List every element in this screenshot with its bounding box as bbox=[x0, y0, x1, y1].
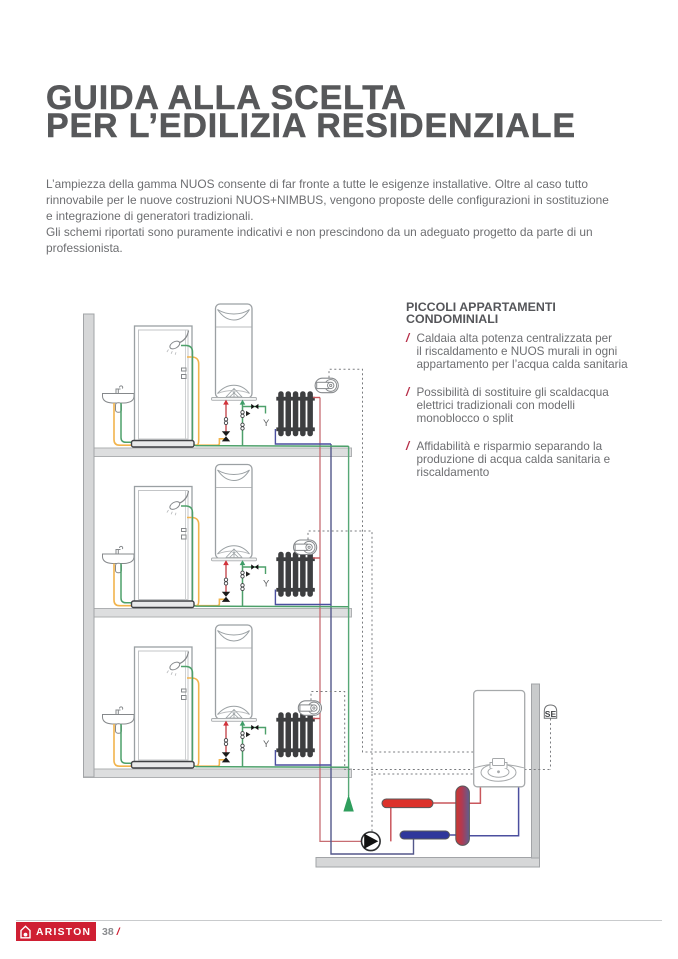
svg-text:SE: SE bbox=[545, 709, 557, 719]
